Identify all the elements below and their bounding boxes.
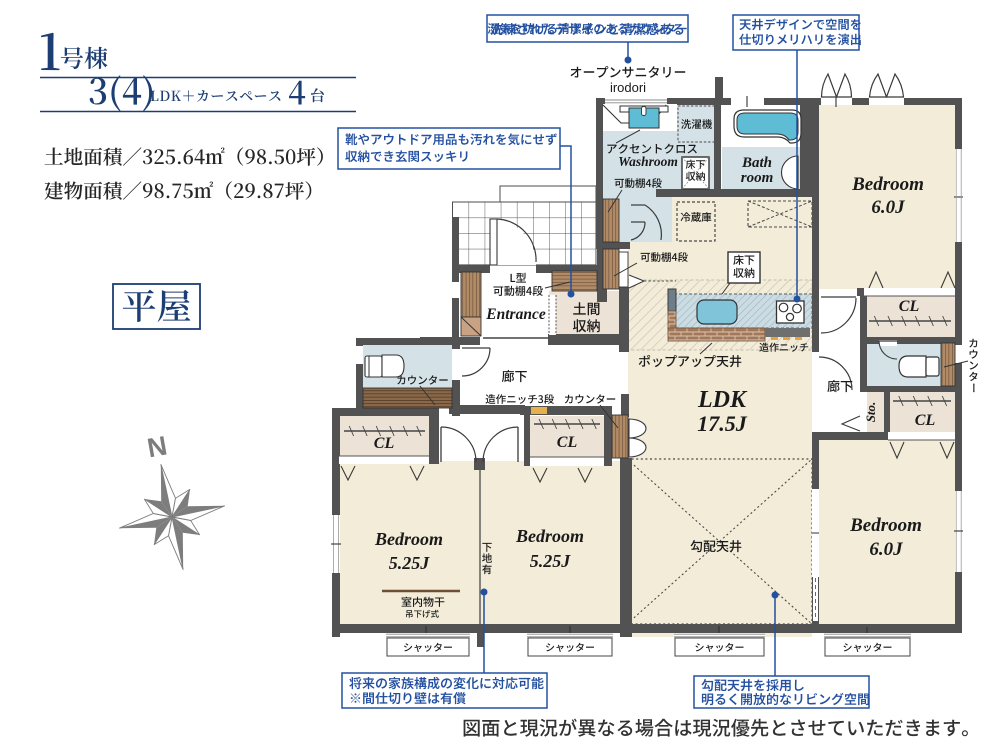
svg-text:Bedroom: Bedroom <box>515 526 584 546</box>
svg-text:Bedroom: Bedroom <box>851 174 924 195</box>
svg-text:Bath: Bath <box>741 155 772 171</box>
svg-text:irodori: irodori <box>610 80 646 95</box>
svg-text:6.0J: 6.0J <box>871 197 905 218</box>
svg-text:room: room <box>741 170 774 186</box>
svg-text:Washroom: Washroom <box>618 154 678 169</box>
svg-text:6.0J: 6.0J <box>869 539 903 560</box>
svg-text:CL: CL <box>899 298 920 315</box>
svg-text:Sto.: Sto. <box>863 402 878 423</box>
svg-text:5.25J: 5.25J <box>530 551 572 571</box>
svg-text:17.5J: 17.5J <box>697 411 748 436</box>
svg-text:LDK: LDK <box>697 387 748 413</box>
svg-text:CL: CL <box>374 435 395 452</box>
svg-text:Bedroom: Bedroom <box>849 515 922 536</box>
svg-text:Entrance: Entrance <box>485 306 546 323</box>
svg-text:5.25J: 5.25J <box>389 553 431 573</box>
svg-text:CL: CL <box>915 412 936 429</box>
svg-text:Bedroom: Bedroom <box>374 529 443 549</box>
svg-text:CL: CL <box>557 434 578 451</box>
